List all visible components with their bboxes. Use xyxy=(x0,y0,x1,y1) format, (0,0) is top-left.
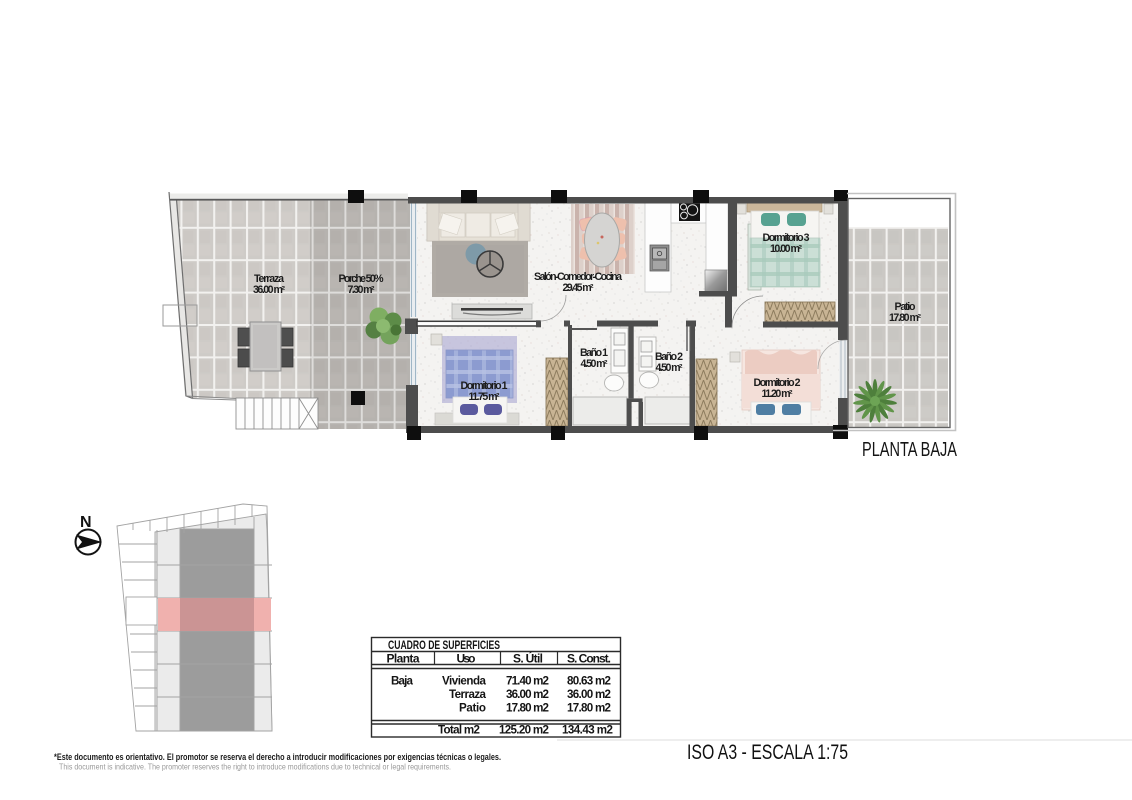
svg-text:17.80 m2: 17.80 m2 xyxy=(506,702,549,715)
svg-text:17.80 m²: 17.80 m² xyxy=(889,312,921,324)
svg-text:ISO A3 - ESCALA 1:75: ISO A3 - ESCALA 1:75 xyxy=(687,740,848,764)
svg-text:Terraza: Terraza xyxy=(449,688,487,701)
svg-text:36.00 m2: 36.00 m2 xyxy=(506,688,549,701)
svg-text:11.75 m²: 11.75 m² xyxy=(469,391,500,403)
svg-text:Baja: Baja xyxy=(391,675,414,688)
svg-text:11.20 m²: 11.20 m² xyxy=(762,388,793,400)
svg-text:S. Útil: S. Útil xyxy=(513,651,543,666)
svg-text:Total m2: Total m2 xyxy=(438,724,480,737)
svg-text:125.20 m2: 125.20 m2 xyxy=(499,724,549,737)
svg-text:7.30 m²: 7.30 m² xyxy=(348,284,375,296)
svg-text:S. Const.: S. Const. xyxy=(567,652,611,666)
svg-text:CUADRO DE SUPERFICIES: CUADRO DE SUPERFICIES xyxy=(388,638,500,652)
svg-text:134.43 m2: 134.43 m2 xyxy=(562,724,613,737)
svg-text:4.50 m²: 4.50 m² xyxy=(581,358,608,370)
svg-text:N: N xyxy=(80,514,92,531)
svg-text:36.00 m²: 36.00 m² xyxy=(253,284,285,296)
svg-text:Vivienda: Vivienda xyxy=(442,675,487,688)
svg-text:Uso: Uso xyxy=(457,652,476,666)
svg-text:*Este documento es orientativo: *Este documento es orientativo. El promo… xyxy=(54,752,501,762)
svg-text:80.63 m2: 80.63 m2 xyxy=(567,675,611,688)
svg-text:PLANTA BAJA: PLANTA BAJA xyxy=(862,439,957,461)
svg-text:4.50 m²: 4.50 m² xyxy=(656,362,683,374)
svg-text:29.45 m²: 29.45 m² xyxy=(563,282,594,294)
svg-text:10.00 m²: 10.00 m² xyxy=(770,243,802,255)
svg-text:Planta: Planta xyxy=(387,652,420,666)
svg-text:This document is indicative. T: This document is indicative. The promote… xyxy=(59,763,451,772)
svg-text:Patio: Patio xyxy=(459,702,486,715)
svg-text:36.00 m2: 36.00 m2 xyxy=(567,688,611,701)
svg-text:17.80 m2: 17.80 m2 xyxy=(567,702,611,715)
svg-text:71.40 m2: 71.40 m2 xyxy=(506,675,549,688)
